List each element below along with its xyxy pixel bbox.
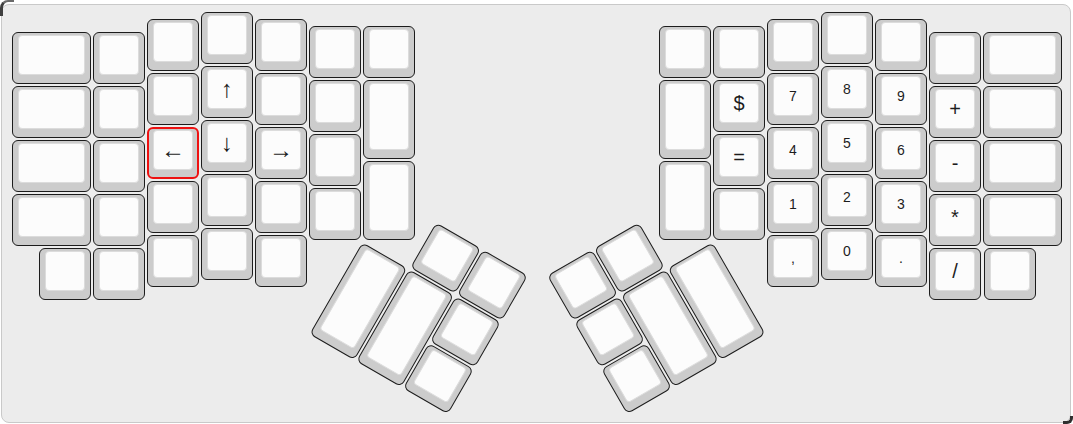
key-top <box>153 22 193 62</box>
key-label: 1 <box>789 197 797 211</box>
key-top <box>773 22 813 62</box>
key-top <box>18 143 85 183</box>
key-l-c3-r4[interactable] <box>201 228 253 280</box>
key-top <box>207 15 247 55</box>
key-top <box>369 83 409 150</box>
key-plus[interactable]: + <box>929 86 981 138</box>
key-r-c1-r0[interactable] <box>713 26 765 78</box>
key-top <box>18 197 85 237</box>
key-top <box>369 29 409 69</box>
key-top <box>935 35 975 75</box>
key-l-c1-r2[interactable] <box>93 140 145 192</box>
key-r-c3-r0[interactable] <box>821 12 873 64</box>
key-top <box>369 164 409 231</box>
key-r-c0-r0[interactable] <box>659 26 711 78</box>
key-label: * <box>951 207 959 227</box>
key-r-bottom-1[interactable] <box>984 248 1036 300</box>
key-top: = <box>719 137 759 177</box>
key-l-c2-r0[interactable] <box>147 19 199 71</box>
key-r-c5-r0[interactable] <box>929 32 981 84</box>
key-top <box>153 76 193 116</box>
keyboard-canvas[interactable]: ←↑↓→$=741,8520963.+-*/ <box>1 4 1071 423</box>
key-label: = <box>733 147 745 167</box>
key-r-c0-r2[interactable] <box>659 161 711 240</box>
key-num-7[interactable]: 7 <box>767 73 819 125</box>
key-r-c2-r0[interactable] <box>767 19 819 71</box>
key-l-c5-r3[interactable] <box>309 188 361 240</box>
key-top <box>207 177 247 217</box>
key-top: 4 <box>773 130 813 170</box>
key-top <box>261 76 301 116</box>
key-top <box>315 137 355 177</box>
key-num-0[interactable]: 0 <box>821 228 873 280</box>
key-l-c2-r3[interactable] <box>147 181 199 233</box>
key-top <box>18 35 85 75</box>
key-top: ← <box>153 130 193 170</box>
key-equals[interactable]: = <box>713 134 765 186</box>
key-l-c6-r1[interactable] <box>363 80 415 159</box>
canvas-corner-mark-top-left <box>0 0 14 16</box>
key-top <box>45 251 85 291</box>
key-top <box>989 143 1056 183</box>
key-l-c0-r3[interactable] <box>12 194 91 246</box>
key-l-c0-r1[interactable] <box>12 86 91 138</box>
key-arrow-left[interactable]: ← <box>147 127 199 179</box>
key-r-c6-r2[interactable] <box>983 140 1062 192</box>
key-top <box>665 83 705 150</box>
page: ←↑↓→$=741,8520963.+-*/ <box>0 0 1073 424</box>
key-l-bottom-1[interactable] <box>39 248 91 300</box>
key-l-c5-r1[interactable] <box>309 80 361 132</box>
key-top <box>554 255 609 310</box>
key-l-c2-r1[interactable] <box>147 73 199 125</box>
key-top: * <box>935 197 975 237</box>
key-top <box>989 197 1056 237</box>
key-asterisk[interactable]: * <box>929 194 981 246</box>
key-minus[interactable]: - <box>929 140 981 192</box>
key-top: 6 <box>881 130 921 170</box>
key-top <box>99 143 139 183</box>
key-l-c4-r1[interactable] <box>255 73 307 125</box>
key-top: ↑ <box>207 69 247 109</box>
key-top <box>99 197 139 237</box>
key-top <box>153 184 193 224</box>
key-label: → <box>269 138 293 162</box>
key-label: / <box>952 261 958 281</box>
key-label: 0 <box>843 244 851 258</box>
key-r-c6-r0[interactable] <box>983 32 1062 84</box>
key-num-1[interactable]: 1 <box>767 181 819 233</box>
key-l-c5-r0[interactable] <box>309 26 361 78</box>
key-l-c0-r2[interactable] <box>12 140 91 192</box>
key-label: 4 <box>789 143 797 157</box>
key-top <box>665 164 705 231</box>
key-l-c5-r2[interactable] <box>309 134 361 186</box>
key-l-c1-r3[interactable] <box>93 194 145 246</box>
key-slash[interactable]: / <box>929 248 981 300</box>
key-top <box>153 238 193 278</box>
key-top: 0 <box>827 231 867 271</box>
key-l-c2-r4[interactable] <box>147 235 199 287</box>
key-l-c1-r0[interactable] <box>93 32 145 84</box>
key-arrow-right[interactable]: → <box>255 127 307 179</box>
key-top: . <box>881 238 921 278</box>
key-top <box>99 35 139 75</box>
key-label: 9 <box>897 89 905 103</box>
key-l-c0-r0[interactable] <box>12 32 91 84</box>
key-top <box>881 22 921 62</box>
key-l-c4-r4[interactable] <box>255 235 307 287</box>
key-num-4[interactable]: 4 <box>767 127 819 179</box>
key-top: 5 <box>827 123 867 163</box>
key-period[interactable]: . <box>875 235 927 287</box>
key-r-c6-r3[interactable] <box>983 194 1062 246</box>
key-top <box>467 255 522 310</box>
key-top: , <box>773 238 813 278</box>
key-num-6[interactable]: 6 <box>875 127 927 179</box>
key-top <box>315 83 355 123</box>
key-label: 8 <box>843 82 851 96</box>
key-label: 3 <box>897 197 905 211</box>
key-top <box>315 191 355 231</box>
key-l-bottom-2[interactable] <box>93 248 145 300</box>
key-arrow-down[interactable]: ↓ <box>201 120 253 172</box>
key-top: → <box>261 130 301 170</box>
key-top: 3 <box>881 184 921 224</box>
key-label: 6 <box>897 143 905 157</box>
key-top <box>989 89 1056 129</box>
key-top <box>665 29 705 69</box>
key-top: 7 <box>773 76 813 116</box>
key-top: 9 <box>881 76 921 116</box>
key-top: - <box>935 143 975 183</box>
key-num-9[interactable]: 9 <box>875 73 927 125</box>
key-top: + <box>935 89 975 129</box>
key-label: , <box>791 251 795 265</box>
canvas-corner-mark-bottom-right <box>1063 416 1073 424</box>
key-top: 1 <box>773 184 813 224</box>
key-top <box>420 228 475 283</box>
key-top: / <box>935 251 975 291</box>
key-comma[interactable]: , <box>767 235 819 287</box>
key-top <box>99 251 139 291</box>
key-label: ↓ <box>221 131 233 155</box>
key-l-c6-r0[interactable] <box>363 26 415 78</box>
key-l-c4-r0[interactable] <box>255 19 307 71</box>
key-l-c1-r1[interactable] <box>93 86 145 138</box>
key-label: + <box>949 99 961 119</box>
key-top: $ <box>719 83 759 123</box>
key-top <box>261 184 301 224</box>
key-top <box>827 15 867 55</box>
key-l-c4-r3[interactable] <box>255 181 307 233</box>
key-l-c6-r2[interactable] <box>363 161 415 240</box>
key-l-c3-r3[interactable] <box>201 174 253 226</box>
key-label: $ <box>733 93 744 113</box>
key-r-c4-r0[interactable] <box>875 19 927 71</box>
key-top <box>990 251 1030 291</box>
key-top <box>601 228 656 283</box>
key-top <box>315 29 355 69</box>
key-r-c1-r3[interactable] <box>713 188 765 240</box>
key-r-c0-r1[interactable] <box>659 80 711 159</box>
key-top: 2 <box>827 177 867 217</box>
key-num-8[interactable]: 8 <box>821 66 873 118</box>
key-label: 5 <box>843 136 851 150</box>
key-label: - <box>952 153 959 173</box>
key-label: . <box>899 251 903 265</box>
key-top: ↓ <box>207 123 247 163</box>
key-top: 8 <box>827 69 867 109</box>
key-top <box>18 89 85 129</box>
key-num-3[interactable]: 3 <box>875 181 927 233</box>
key-top <box>261 22 301 62</box>
key-label: ← <box>161 138 185 162</box>
key-top <box>99 89 139 129</box>
key-top <box>989 35 1056 75</box>
key-top <box>719 29 759 69</box>
key-num-2[interactable]: 2 <box>821 174 873 226</box>
key-label: 2 <box>843 190 851 204</box>
key-r-c6-r1[interactable] <box>983 86 1062 138</box>
key-top <box>719 191 759 231</box>
key-top <box>207 231 247 271</box>
key-top <box>261 238 301 278</box>
key-num-5[interactable]: 5 <box>821 120 873 172</box>
key-l-c3-r0[interactable] <box>201 12 253 64</box>
key-label: 7 <box>789 89 797 103</box>
key-arrow-up[interactable]: ↑ <box>201 66 253 118</box>
key-label: ↑ <box>221 77 233 101</box>
key-dollar[interactable]: $ <box>713 80 765 132</box>
